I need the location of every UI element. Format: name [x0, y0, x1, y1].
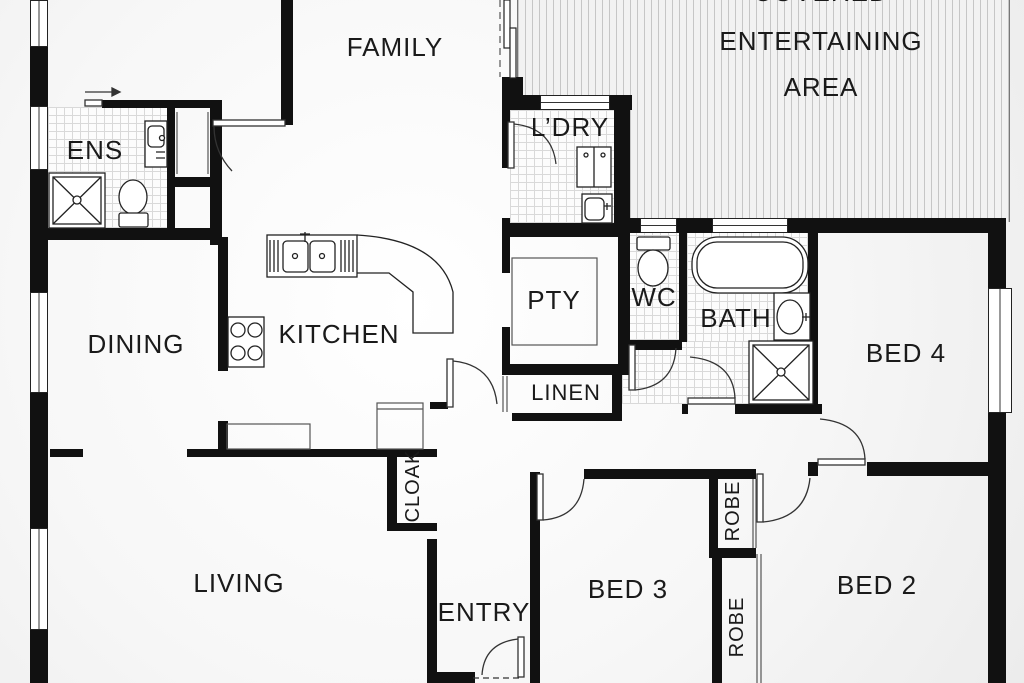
robe-slider	[757, 554, 761, 683]
door-entry	[518, 637, 524, 677]
room-label-cloak: CLOAK	[403, 450, 423, 523]
room-label-dining: DINING	[88, 331, 185, 357]
slider-arrow-head	[112, 88, 120, 96]
door-wc	[629, 345, 635, 390]
room-label-family: FAMILY	[347, 34, 444, 60]
toilet-icon	[638, 250, 668, 286]
toilet-icon	[119, 180, 147, 214]
door-hall	[447, 359, 453, 407]
room-label-entry: ENTRY	[438, 599, 531, 625]
door-bed3	[537, 474, 543, 520]
room-label-bed3: BED 3	[588, 576, 668, 602]
room-label-bed2: BED 2	[837, 572, 917, 598]
linen-doors	[503, 376, 507, 412]
room-label-linen: LINEN	[531, 382, 601, 404]
room-label-bath: BATH	[700, 305, 771, 331]
cupboard	[377, 403, 423, 449]
sliding-door-family	[504, 0, 516, 78]
door-bed4	[818, 459, 865, 465]
room-label-wc: WC	[631, 284, 676, 310]
robe-slider	[753, 479, 756, 548]
room-label-entertaining: ENTERTAINING	[719, 28, 922, 54]
sink-bowl	[283, 241, 308, 272]
room-label-kitchen: KITCHEN	[278, 321, 399, 347]
bench	[227, 424, 310, 449]
laundry-fixtures	[577, 147, 612, 223]
sink-bowl	[310, 241, 335, 272]
wc-fixtures	[637, 237, 670, 286]
room-label-area: AREA	[784, 74, 859, 100]
door-bed2	[757, 474, 763, 522]
floor-plan: BED 1 FAMILY COVERED ENTERTAINING AREA E…	[0, 0, 1024, 683]
bed1-robe-shelf	[177, 112, 208, 174]
door-bed1	[213, 120, 285, 126]
cistern	[637, 237, 670, 250]
room-label-robe-bed3: ROBE	[723, 481, 743, 542]
door-bath	[688, 398, 735, 404]
room-label-robe-bed2: ROBE	[727, 597, 747, 658]
room-label-covered: COVERED	[753, 0, 889, 5]
door-ens-slider	[85, 100, 102, 106]
room-label-ens: ENS	[67, 137, 123, 163]
room-label-bed4: BED 4	[866, 340, 946, 366]
room-label-ldry: L’DRY	[531, 114, 609, 140]
room-label-living: LIVING	[193, 570, 284, 596]
room-label-pty: PTY	[527, 287, 581, 313]
room-label-bed1: BED 1	[124, 0, 204, 2]
door-laundry	[508, 122, 514, 168]
basin-icon	[777, 300, 803, 334]
